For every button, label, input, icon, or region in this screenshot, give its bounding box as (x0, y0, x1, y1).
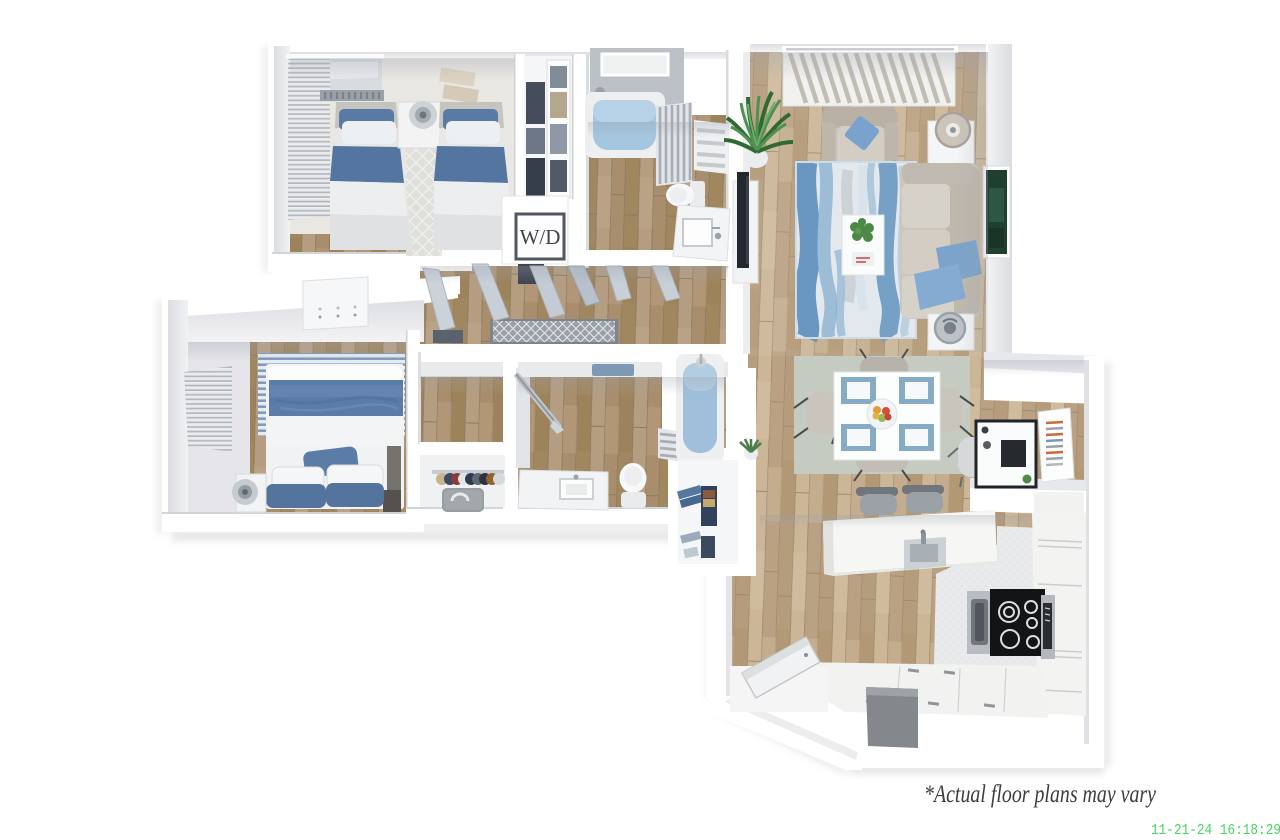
svg-text:W/D: W/D (520, 225, 561, 249)
svg-text:11-21-24 16:18:29: 11-21-24 16:18:29 (1151, 822, 1280, 839)
svg-text:*Actual floor plans may vary: *Actual floor plans may vary (924, 781, 1157, 808)
